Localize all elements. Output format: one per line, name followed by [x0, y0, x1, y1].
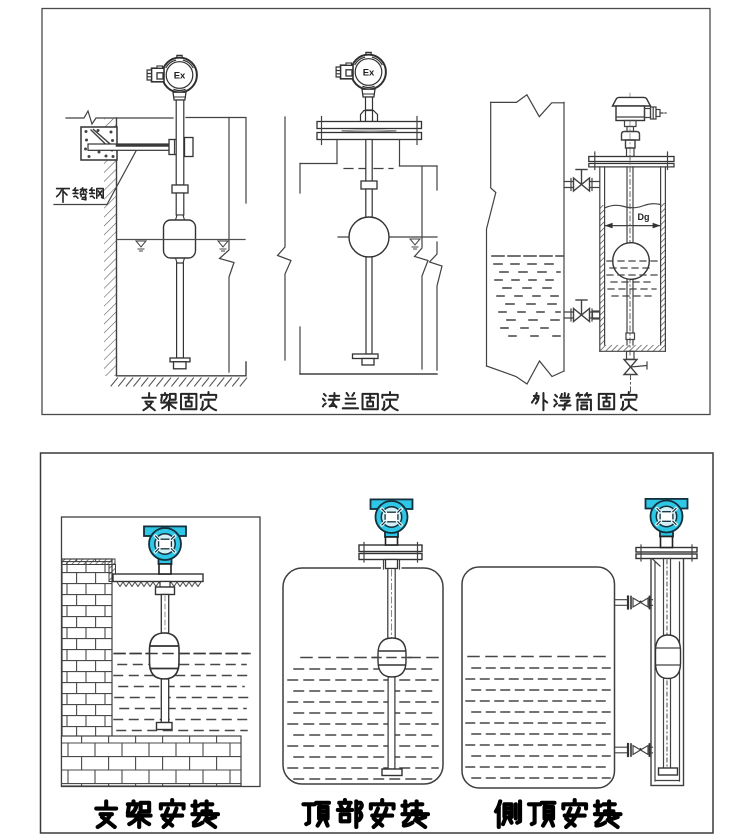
svg-text:Dg: Dg: [638, 212, 650, 222]
